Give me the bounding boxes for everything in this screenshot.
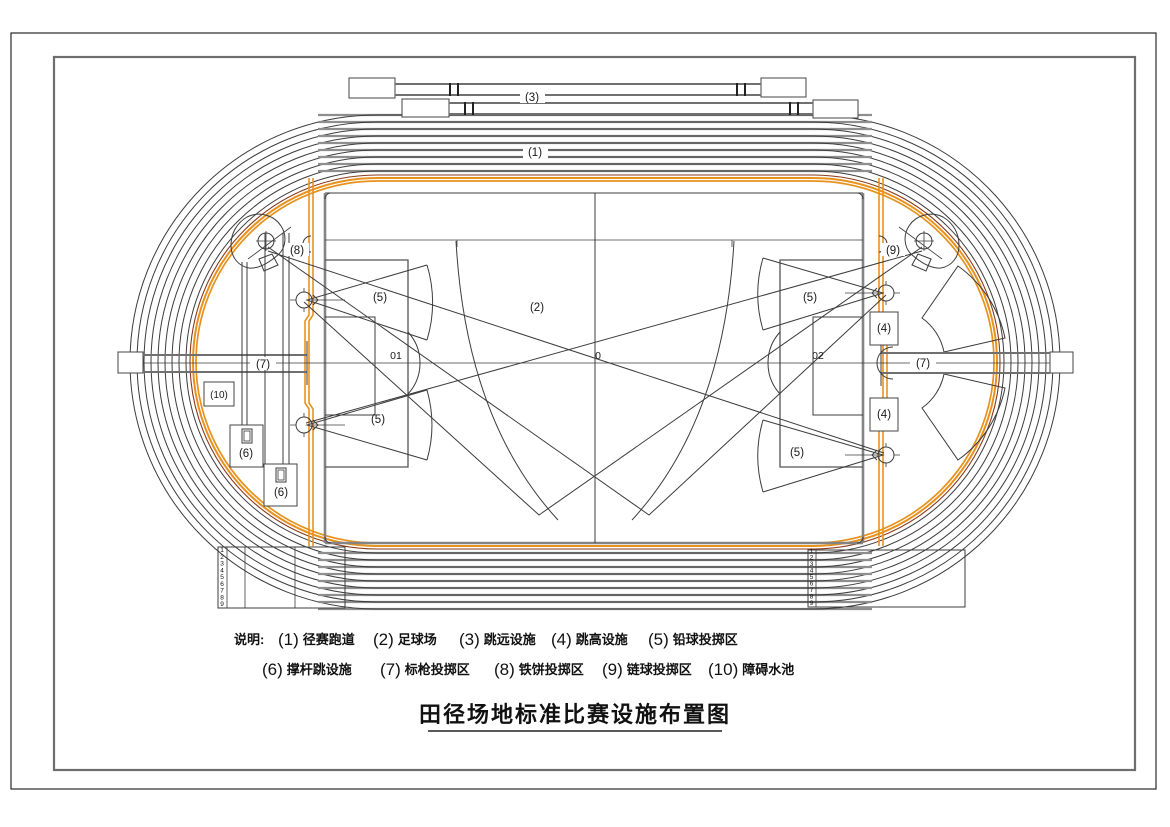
sand-pit xyxy=(761,78,806,97)
start-zone-box xyxy=(218,547,345,608)
callout-soccer: (2) xyxy=(530,302,544,314)
legend-item-10: (10)障碍水池 xyxy=(708,660,794,679)
sector-line-4 xyxy=(306,251,922,423)
legend-item-1: (1)径赛跑道 xyxy=(278,630,355,649)
legend-item-3: (3)跳远设施 xyxy=(459,630,536,649)
callout-shot-put-1: (5) xyxy=(373,292,387,304)
lane-number: 9 xyxy=(810,600,814,607)
callout-javelin-right: (7) xyxy=(916,358,930,370)
callout-discus: (8) xyxy=(290,245,304,257)
field-mark-center: 0 xyxy=(595,350,601,362)
callout-javelin-left: (7) xyxy=(256,359,270,371)
callout-high-jump-upper: (4) xyxy=(877,323,891,335)
sector-arc-right xyxy=(632,241,734,520)
callout-high-jump-lower: (4) xyxy=(877,409,891,421)
callout-pole-vault-2: (6) xyxy=(274,487,288,499)
callout-shot-put-3: (5) xyxy=(803,292,817,304)
field-mark-right-goal: 02 xyxy=(812,350,824,362)
legend-item-5: (5)铅球投掷区 xyxy=(648,630,738,649)
lane-number: 9 xyxy=(220,601,224,608)
callout-shot-put-2: (5) xyxy=(371,414,385,426)
runway-end-tab xyxy=(118,352,143,373)
finish-zone-box xyxy=(808,550,965,607)
callout-long-jump: (3) xyxy=(525,92,539,104)
legend-item-9: (9)链球投掷区 xyxy=(602,660,692,679)
javelin-runway-right xyxy=(877,342,1073,386)
soccer-field xyxy=(325,193,863,543)
callout-hammer: (9) xyxy=(886,245,900,257)
long-jump-runway-upper xyxy=(349,78,806,98)
legend-item-7: (7)标枪投掷区 xyxy=(380,660,470,679)
legend-prefix: 说明: xyxy=(234,632,264,647)
field-corner-arcs xyxy=(325,193,863,543)
shot-circle-left-lower xyxy=(290,390,432,460)
legend-item-6: (6)撑杆跳设施 xyxy=(262,660,352,679)
sector-line-3 xyxy=(268,251,884,453)
callout-track: (1) xyxy=(528,147,542,159)
sand-pit xyxy=(402,99,449,117)
sector-line-2 xyxy=(304,247,922,515)
cad-canvas: 123456789123456789 (1) (2) (3) (4) (4) (… xyxy=(0,0,1170,827)
sand-pit xyxy=(349,78,395,98)
callout-water-pit: (10) xyxy=(210,390,228,401)
shot-circle-left-upper xyxy=(290,265,433,340)
callout-shot-put-4: (5) xyxy=(790,447,804,459)
upper-reference-line xyxy=(325,240,863,247)
long-jump-areas xyxy=(349,78,858,118)
legend-item-2: (2)足球场 xyxy=(373,630,437,649)
sector-arc-left xyxy=(456,241,558,520)
legend-item-8: (8)铁饼投掷区 xyxy=(494,660,584,679)
callouts: (1) (2) (3) (4) (4) (5) (5) (5) (5) (6) … xyxy=(210,91,936,499)
legend: 说明: (1)径赛跑道 (2)足球场 (3)跳远设施 (4)跳高设施 (5)铅球… xyxy=(234,630,794,679)
callout-pole-vault-1: (6) xyxy=(239,448,253,460)
runway-end-tab xyxy=(1050,352,1073,373)
track-field-drawing-sheet: 123456789123456789 (1) (2) (3) (4) (4) (… xyxy=(0,0,1170,827)
drawing-title: 田径场地标准比赛设施布置图 xyxy=(419,702,731,727)
sand-pit xyxy=(813,100,858,118)
legend-item-4: (4)跳高设施 xyxy=(551,630,628,649)
title-block: 田径场地标准比赛设施布置图 xyxy=(419,702,731,731)
field-mark-left-goal: 01 xyxy=(390,350,402,362)
